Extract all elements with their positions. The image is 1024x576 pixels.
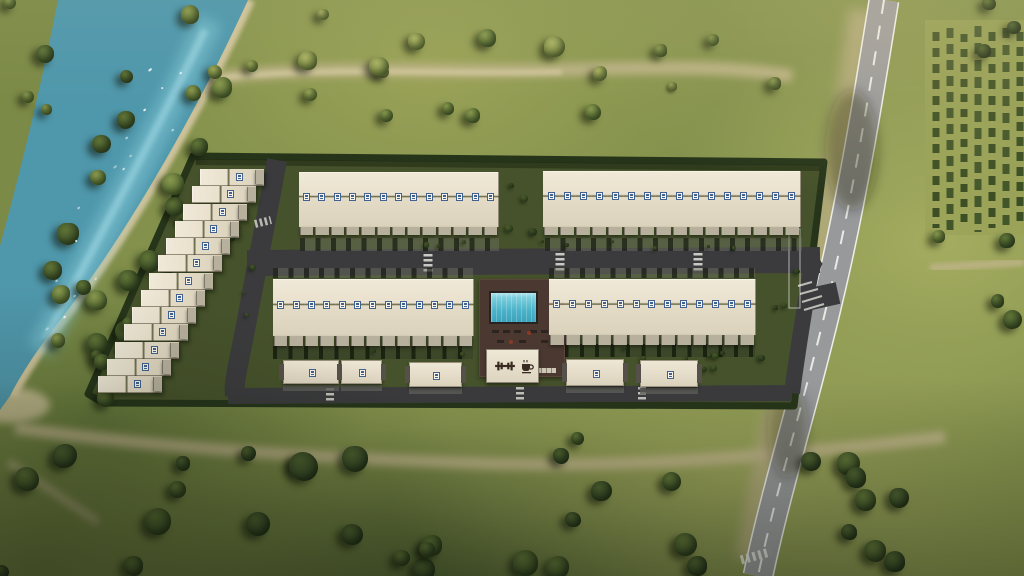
unit-terrace: [361, 227, 374, 235]
townhouse-unit: [314, 172, 330, 227]
unit-terrace: [382, 336, 395, 346]
unit-terrace: [484, 227, 497, 235]
unit-terrace: [153, 377, 162, 391]
unit-terrace: [331, 227, 344, 235]
unit-terrace: [221, 239, 230, 253]
unit-terrace: [443, 336, 456, 346]
unit-terrace: [598, 335, 612, 345]
pool-lounger: [519, 340, 526, 343]
unit-terrace: [422, 227, 435, 235]
unit-badge-icon: [553, 300, 560, 308]
townhouse-unit: [299, 172, 315, 227]
pool-lounger: [541, 330, 548, 333]
unit-terrace: [438, 227, 451, 235]
unit-terrace: [753, 227, 767, 235]
swimming-pool: [489, 291, 538, 324]
unit-terrace: [737, 227, 751, 235]
unit-badge-icon: [633, 300, 640, 308]
townhouse-unit: [644, 279, 661, 335]
townhouse-unit: [330, 172, 346, 227]
unit-terrace: [673, 227, 687, 235]
unit-terrace: [274, 336, 287, 346]
unit-badge-icon: [433, 372, 440, 380]
buildings-layer: [0, 0, 1024, 576]
unit-badge-icon: [446, 301, 453, 309]
unit-badge-icon: [380, 193, 387, 201]
unit-badge-icon: [708, 192, 715, 200]
unit-badge-icon: [712, 300, 719, 308]
townhouse-unit: [437, 172, 453, 227]
unit-terrace: [238, 205, 247, 219]
townhouse-unit: [639, 171, 656, 227]
unit-terrace: [608, 227, 622, 235]
unit-badge-icon: [756, 192, 763, 200]
townhouse-unit: [581, 279, 598, 335]
townhouse-unit: [707, 279, 724, 335]
townhouse-unit: [107, 359, 171, 376]
unit-badge-icon: [219, 208, 226, 216]
unit-terrace: [289, 336, 302, 346]
unit-terrace: [377, 227, 390, 235]
townhouse-unit: [183, 204, 247, 221]
unit-terrace: [204, 274, 213, 288]
unit-badge-icon: [548, 192, 555, 200]
unit-terrace: [566, 335, 580, 345]
unit-terrace: [724, 335, 738, 345]
unit-terrace: [640, 227, 654, 235]
unit-terrace: [468, 227, 481, 235]
unit-terrace: [693, 335, 707, 345]
townhouse-unit: [304, 279, 320, 336]
townhouse-unit: [192, 186, 256, 203]
unit-badge-icon: [426, 193, 433, 201]
townhouse-unit: [115, 342, 179, 359]
unit-badge-icon: [277, 301, 284, 309]
unit-badge-icon: [456, 193, 463, 201]
townhouse-unit: [752, 171, 769, 227]
unit-badge-icon: [359, 369, 366, 377]
townhouse-unit: [411, 279, 427, 336]
townhouse-unit: [396, 279, 412, 336]
unit-terrace: [397, 336, 410, 346]
unit-terrace: [213, 256, 222, 270]
unit-badge-icon: [210, 225, 217, 233]
unit-terrace: [629, 335, 643, 345]
unit-badge-icon: [601, 300, 608, 308]
unit-badge-icon: [323, 301, 330, 309]
unit-terrace: [550, 335, 564, 345]
unit-terrace: [785, 227, 799, 235]
unit-badge-icon: [168, 311, 175, 319]
unit-badge-icon: [176, 294, 183, 302]
townhouse-unit: [720, 171, 737, 227]
unit-badge-icon: [202, 242, 209, 250]
unit-terrace: [560, 227, 574, 235]
townhouse-unit: [623, 171, 640, 227]
townhouse-unit: [132, 307, 196, 324]
townhouse-unit: [376, 172, 392, 227]
unit-badge-icon: [596, 192, 603, 200]
unit-badge-icon: [309, 369, 316, 377]
cafe-icon: [520, 359, 534, 374]
unit-terrace: [708, 335, 722, 345]
unit-badge-icon: [308, 301, 315, 309]
unit-badge-icon: [644, 192, 651, 200]
townhouse-unit: [406, 172, 422, 227]
unit-terrace: [170, 343, 179, 357]
townhouse-unit: [549, 279, 566, 335]
townhouse-unit: [141, 290, 205, 307]
unit-badge-icon: [680, 300, 687, 308]
unit-terrace: [407, 227, 420, 235]
townhouse-unit: [391, 172, 407, 227]
unit-terrace: [661, 335, 675, 345]
unit-badge-icon: [364, 193, 371, 201]
unit-badge-icon: [369, 301, 376, 309]
unit-badge-icon: [676, 192, 683, 200]
unit-badge-icon: [193, 259, 200, 267]
townhouse-unit: [427, 279, 443, 336]
unit-terrace: [187, 308, 196, 322]
unit-badge-icon: [151, 346, 158, 354]
unit-badge-icon: [159, 328, 166, 336]
unit-badge-icon: [580, 192, 587, 200]
outbuilding: [640, 360, 698, 387]
townhouse-unit: [676, 279, 693, 335]
unit-badge-icon: [385, 301, 392, 309]
unit-badge-icon: [354, 301, 361, 309]
outbuilding: [283, 360, 339, 384]
unit-badge-icon: [740, 192, 747, 200]
unit-badge-icon: [400, 301, 407, 309]
unit-badge-icon: [612, 192, 619, 200]
pool-lounger: [503, 330, 510, 333]
unit-badge-icon: [416, 301, 423, 309]
unit-badge-icon: [788, 192, 795, 200]
unit-terrace: [320, 336, 333, 346]
unit-badge-icon: [728, 300, 735, 308]
townhouse-unit: [692, 279, 709, 335]
unit-badge-icon: [772, 192, 779, 200]
townhouse-unit: [723, 279, 740, 335]
pool-lounger: [492, 330, 499, 333]
unit-badge-icon: [617, 300, 624, 308]
unit-terrace: [300, 227, 313, 235]
unit-terrace: [366, 336, 379, 346]
townhouse-unit: [442, 279, 458, 336]
unit-badge-icon: [349, 193, 356, 201]
unit-terrace: [315, 227, 328, 235]
unit-terrace: [613, 335, 627, 345]
unit-terrace: [412, 336, 425, 346]
unit-badge-icon: [303, 193, 310, 201]
townhouse-unit: [365, 279, 381, 336]
unit-badge-icon: [585, 300, 592, 308]
unit-terrace: [428, 336, 441, 346]
unit-terrace: [689, 227, 703, 235]
unit-badge-icon: [318, 193, 325, 201]
unit-terrace: [392, 227, 405, 235]
unit-badge-icon: [696, 300, 703, 308]
unit-terrace: [624, 227, 638, 235]
unit-badge-icon: [648, 300, 655, 308]
townhouse-unit: [149, 273, 213, 290]
unit-badge-icon: [664, 300, 671, 308]
unit-badge-icon: [236, 173, 243, 181]
unit-badge-icon: [487, 193, 494, 201]
townhouse-unit: [768, 171, 785, 227]
townhouse-unit: [655, 171, 672, 227]
unit-terrace: [592, 227, 606, 235]
townhouse-unit: [559, 171, 576, 227]
townhouse-unit: [543, 171, 560, 227]
unit-terrace: [230, 222, 239, 236]
townhouse-unit: [660, 279, 677, 335]
unit-terrace: [346, 227, 359, 235]
unit-terrace: [162, 360, 171, 374]
townhouse-unit: [335, 279, 351, 336]
unit-terrace: [544, 227, 558, 235]
townhouse-unit: [483, 172, 499, 227]
unit-terrace: [459, 336, 472, 346]
townhouse-unit: [597, 279, 614, 335]
clubhouse-roof: [486, 349, 539, 383]
unit-terrace: [582, 335, 596, 345]
unit-terrace: [677, 335, 691, 345]
unit-badge-icon: [593, 370, 600, 378]
unit-badge-icon: [339, 301, 346, 309]
townhouse-unit: [704, 171, 721, 227]
unit-badge-icon: [724, 192, 731, 200]
unit-badge-icon: [564, 192, 571, 200]
unit-badge-icon: [462, 301, 469, 309]
unit-badge-icon: [569, 300, 576, 308]
unit-terrace: [179, 325, 188, 339]
unit-terrace: [247, 187, 256, 201]
townhouse-unit: [381, 279, 397, 336]
townhouse-unit: [350, 279, 366, 336]
unit-badge-icon: [134, 380, 141, 388]
unit-badge-icon: [431, 301, 438, 309]
unit-badge-icon: [185, 277, 192, 285]
townhouse-unit: [421, 172, 437, 227]
outbuilding: [566, 359, 624, 386]
townhouse-unit: [591, 171, 608, 227]
outbuilding: [409, 362, 462, 387]
pool-umbrella: [527, 331, 531, 335]
pool-lounger: [497, 340, 504, 343]
townhouse-unit: [575, 171, 592, 227]
unit-badge-icon: [293, 301, 300, 309]
townhouse-unit: [175, 221, 239, 238]
townhouse-unit: [158, 255, 222, 272]
townhouse-unit: [458, 279, 474, 336]
townhouse-unit: [166, 238, 230, 255]
townhouse-unit: [672, 171, 689, 227]
unit-terrace: [351, 336, 364, 346]
unit-terrace: [740, 335, 754, 345]
townhouse-unit: [628, 279, 645, 335]
unit-terrace: [705, 227, 719, 235]
unit-badge-icon: [334, 193, 341, 201]
unit-terrace: [255, 170, 264, 184]
townhouse-unit: [345, 172, 361, 227]
unit-terrace: [656, 227, 670, 235]
townhouse-unit: [360, 172, 376, 227]
townhouse-unit: [688, 171, 705, 227]
unit-terrace: [769, 227, 783, 235]
townhouse-unit: [124, 324, 188, 341]
outbuilding: [341, 360, 382, 384]
unit-terrace: [196, 291, 205, 305]
townhouse-unit: [612, 279, 629, 335]
gym-icon: [494, 359, 516, 373]
unit-badge-icon: [667, 371, 674, 379]
pool-umbrella: [509, 340, 513, 344]
townhouse-unit: [288, 279, 304, 336]
pool-lounger: [514, 330, 521, 333]
unit-badge-icon: [744, 300, 751, 308]
unit-badge-icon: [395, 193, 402, 201]
townhouse-unit: [467, 172, 483, 227]
pool-lounger: [530, 330, 537, 333]
townhouse-unit: [200, 169, 264, 186]
townhouse-unit: [273, 279, 289, 336]
pool-lounger: [541, 340, 548, 343]
unit-badge-icon: [441, 193, 448, 201]
unit-terrace: [645, 335, 659, 345]
townhouse-unit: [319, 279, 335, 336]
unit-badge-icon: [628, 192, 635, 200]
unit-badge-icon: [142, 363, 149, 371]
unit-badge-icon: [410, 193, 417, 201]
unit-terrace: [576, 227, 590, 235]
townhouse-unit: [784, 171, 801, 227]
unit-terrace: [453, 227, 466, 235]
unit-badge-icon: [472, 193, 479, 201]
townhouse-unit: [565, 279, 582, 335]
unit-badge-icon: [692, 192, 699, 200]
townhouse-unit: [98, 376, 162, 393]
aerial-site-render: [0, 0, 1024, 576]
townhouse-unit: [452, 172, 468, 227]
townhouse-unit: [607, 171, 624, 227]
townhouse-unit: [739, 279, 756, 335]
unit-terrace: [305, 336, 318, 346]
townhouse-unit: [736, 171, 753, 227]
unit-badge-icon: [660, 192, 667, 200]
unit-terrace: [721, 227, 735, 235]
unit-badge-icon: [227, 190, 234, 198]
unit-terrace: [336, 336, 349, 346]
